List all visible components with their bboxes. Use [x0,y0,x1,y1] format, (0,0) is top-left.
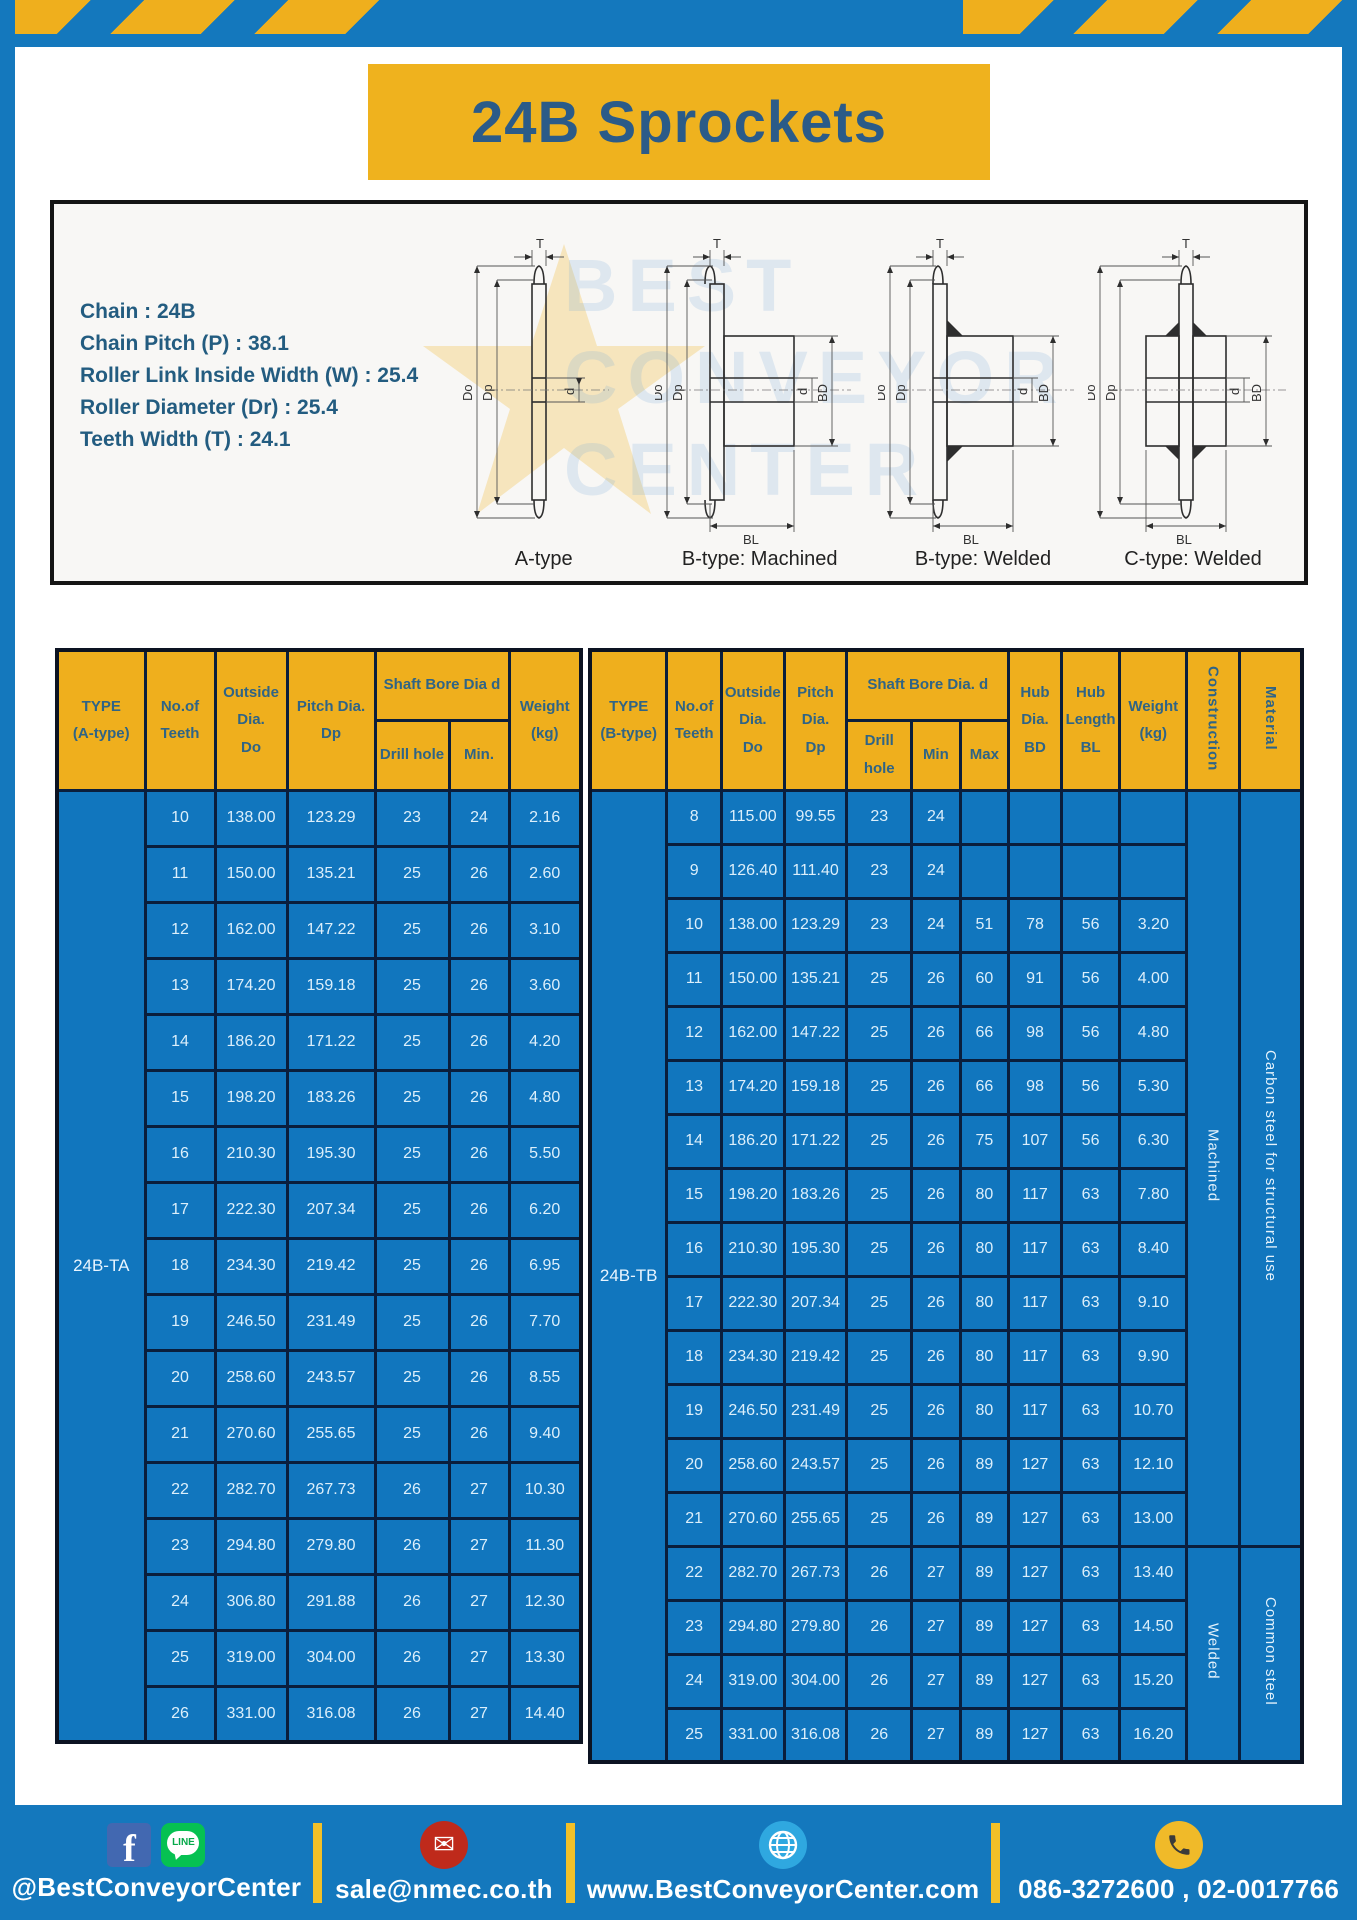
cell-min: 26 [912,1492,961,1546]
cell-min: 26 [449,1126,509,1182]
cell-outside-dia: 186.20 [215,1014,287,1070]
cell-outside-dia: 234.30 [721,1330,784,1384]
cell-hub-dia: 127 [1009,1600,1062,1654]
svg-text:BL: BL [963,532,979,547]
col-header-type: TYPE (B-type) [590,650,667,790]
cell-teeth: 23 [667,1600,722,1654]
cell-hub-length [1061,790,1120,844]
cell-weight: 8.55 [509,1350,581,1406]
footer-website: www.BestConveyorCenter.com [587,1874,980,1905]
col-header-pitch-dia: Pitch Dia. Dp [784,650,847,790]
col-header-outside-dia: Outside Dia. Do [721,650,784,790]
cell-drill-hole: 23 [847,844,912,898]
cell-outside-dia: 150.00 [215,846,287,902]
footer-email: sale@nmec.co.th [335,1874,553,1905]
cell-drill-hole: 25 [375,958,449,1014]
cell-weight: 9.90 [1120,1330,1187,1384]
cell-teeth: 24 [145,1574,215,1630]
cell-drill-hole: 23 [847,790,912,844]
cell-max: 89 [960,1438,1009,1492]
cell-drill-hole: 25 [375,1406,449,1462]
cell-hub-length: 63 [1061,1546,1120,1600]
cell-min: 26 [912,1276,961,1330]
cell-max: 80 [960,1168,1009,1222]
cell-min: 26 [912,1384,961,1438]
cell-min: 26 [912,1330,961,1384]
cell-teeth: 25 [145,1630,215,1686]
cell-min: 24 [912,790,961,844]
cell-weight: 6.20 [509,1182,581,1238]
cell-teeth: 11 [145,846,215,902]
cell-min: 26 [912,1168,961,1222]
globe-icon[interactable] [759,1821,807,1869]
cell-outside-dia: 210.30 [215,1126,287,1182]
table-row: 22282.70267.732627891276313.40WeldedComm… [590,1546,1302,1600]
cell-drill-hole: 25 [375,1350,449,1406]
cell-hub-length [1061,844,1120,898]
cell-outside-dia: 210.30 [721,1222,784,1276]
cell-teeth: 10 [145,790,215,846]
cell-drill-hole: 25 [847,1438,912,1492]
cell-max: 89 [960,1708,1009,1762]
cell-pitch-dia: 123.29 [287,790,375,846]
cell-hub-dia: 127 [1009,1492,1062,1546]
cell-max: 80 [960,1384,1009,1438]
footer-social-handle: @BestConveyorCenter [12,1872,302,1903]
cell-teeth: 22 [667,1546,722,1600]
material-cell: Common steel [1239,1546,1302,1762]
cell-teeth: 22 [145,1462,215,1518]
diagram-panel: BEST CONVEYOR CENTER Chain : 24B Chain P… [50,200,1308,585]
cell-max [960,844,1009,898]
cell-weight: 13.30 [509,1630,581,1686]
cell-outside-dia: 258.60 [215,1350,287,1406]
cell-pitch-dia: 207.34 [287,1182,375,1238]
table-a-rows: 24B-TA10138.00123.2923242.1611150.00135.… [57,790,581,1742]
cell-pitch-dia: 171.22 [287,1014,375,1070]
cell-outside-dia: 294.80 [215,1518,287,1574]
cell-drill-hole: 25 [847,1222,912,1276]
cell-teeth: 18 [145,1238,215,1294]
cell-pitch-dia: 267.73 [784,1546,847,1600]
cell-outside-dia: 162.00 [215,902,287,958]
cell-drill-hole: 23 [847,898,912,952]
cell-pitch-dia: 304.00 [287,1630,375,1686]
line-icon[interactable]: LINE [161,1823,205,1867]
b-type-welded-drawing-icon: T Do Dp [878,236,1088,548]
cell-pitch-dia: 111.40 [784,844,847,898]
table-row: 24B-TA10138.00123.2923242.16 [57,790,581,846]
cell-weight: 10.30 [509,1462,581,1518]
col-header-hub-length: Hub Length BL [1061,650,1120,790]
cell-hub-dia: 127 [1009,1438,1062,1492]
cell-outside-dia: 270.60 [721,1492,784,1546]
cell-hub-dia: 127 [1009,1546,1062,1600]
cell-pitch-dia: 231.49 [287,1294,375,1350]
cell-drill-hole: 25 [375,902,449,958]
cell-pitch-dia: 255.65 [784,1492,847,1546]
footer-divider [991,1823,1000,1903]
cell-max: 51 [960,898,1009,952]
b-type-machined-drawing-icon: T Do Dp d [655,236,865,548]
cell-hub-dia: 91 [1009,952,1062,1006]
cell-weight: 4.80 [509,1070,581,1126]
cell-teeth: 14 [667,1114,722,1168]
cell-teeth: 17 [667,1276,722,1330]
cell-pitch-dia: 171.22 [784,1114,847,1168]
cell-weight: 4.80 [1120,1006,1187,1060]
cell-pitch-dia: 135.21 [784,952,847,1006]
cell-hub-dia: 117 [1009,1276,1062,1330]
type-label-cell: 24B-TA [57,790,145,1742]
cell-teeth: 14 [145,1014,215,1070]
cell-hub-dia: 117 [1009,1330,1062,1384]
cell-hub-dia: 98 [1009,1060,1062,1114]
cell-weight: 14.40 [509,1686,581,1742]
cell-hub-length: 63 [1061,1384,1120,1438]
cell-outside-dia: 115.00 [721,790,784,844]
svg-text:Do: Do [878,384,888,401]
cell-pitch-dia: 279.80 [784,1600,847,1654]
svg-text:BD: BD [1249,384,1264,402]
cell-pitch-dia: 195.30 [784,1222,847,1276]
cell-outside-dia: 222.30 [721,1276,784,1330]
cell-hub-length: 63 [1061,1276,1120,1330]
svg-text:Do: Do [1088,384,1098,401]
cell-teeth: 12 [667,1006,722,1060]
cell-min: 24 [912,898,961,952]
cell-pitch-dia: 316.08 [784,1708,847,1762]
cell-drill-hole: 26 [847,1708,912,1762]
cell-outside-dia: 186.20 [721,1114,784,1168]
cell-weight: 7.70 [509,1294,581,1350]
cell-min: 26 [912,1438,961,1492]
svg-text:BL: BL [743,532,759,547]
cell-min: 26 [449,1238,509,1294]
cell-min: 27 [912,1654,961,1708]
email-icon[interactable]: ✉ [420,1821,468,1869]
col-header-max: Max [960,720,1009,790]
hazard-stripe-left [0,0,394,34]
col-header-shaft-bore: Shaft Bore Dia d [375,650,509,720]
cell-weight: 4.00 [1120,952,1187,1006]
cell-teeth: 15 [145,1070,215,1126]
spec-roller-link-width: Roller Link Inside Width (W) : 25.4 [80,360,418,392]
cell-weight: 4.20 [509,1014,581,1070]
cell-pitch-dia: 183.26 [784,1168,847,1222]
cell-max: 80 [960,1330,1009,1384]
cell-outside-dia: 306.80 [215,1574,287,1630]
cell-hub-length: 56 [1061,952,1120,1006]
cell-pitch-dia: 316.08 [287,1686,375,1742]
cell-hub-length: 63 [1061,1600,1120,1654]
svg-text:T: T [713,236,721,251]
col-header-drill-hole: Drill hole [375,720,449,790]
cell-weight [1120,844,1187,898]
cell-max: 89 [960,1492,1009,1546]
cell-pitch-dia: 219.42 [287,1238,375,1294]
cell-min: 26 [449,1294,509,1350]
cell-pitch-dia: 279.80 [287,1518,375,1574]
col-header-shaft-bore: Shaft Bore Dia. d [847,650,1009,720]
svg-text:Do: Do [655,384,665,401]
cell-weight: 3.60 [509,958,581,1014]
footer-phone-section: 086-3272600 , 02-0017766 [1000,1805,1357,1920]
cell-max: 80 [960,1276,1009,1330]
cell-pitch-dia: 159.18 [784,1060,847,1114]
cell-teeth: 13 [667,1060,722,1114]
cell-weight: 9.10 [1120,1276,1187,1330]
cell-min: 26 [449,1406,509,1462]
cell-pitch-dia: 123.29 [784,898,847,952]
cell-max: 89 [960,1654,1009,1708]
cell-outside-dia: 270.60 [215,1406,287,1462]
table-row: 24B-TB8115.0099.552324MachinedCarbon ste… [590,790,1302,844]
table-b-type: TYPE (B-type) No.of Teeth Outside Dia. D… [588,648,1304,1764]
cell-hub-dia [1009,844,1062,898]
col-header-teeth: No.of Teeth [667,650,722,790]
frame-right [1342,0,1357,1920]
footer-email-section: ✉ sale@nmec.co.th [322,1805,566,1920]
cell-pitch-dia: 135.21 [287,846,375,902]
cell-teeth: 23 [145,1518,215,1574]
cell-drill-hole: 26 [847,1546,912,1600]
col-header-teeth: No.of Teeth [145,650,215,790]
cell-teeth: 10 [667,898,722,952]
cell-teeth: 20 [145,1350,215,1406]
cell-pitch-dia: 183.26 [287,1070,375,1126]
svg-text:d: d [1015,388,1030,395]
cell-max: 66 [960,1060,1009,1114]
cell-weight: 5.30 [1120,1060,1187,1114]
cell-min: 27 [449,1630,509,1686]
cell-weight: 11.30 [509,1518,581,1574]
footer-social-section: f LINE @BestConveyorCenter [0,1805,313,1920]
col-header-weight: Weight (kg) [509,650,581,790]
cell-hub-dia [1009,790,1062,844]
cell-pitch-dia: 243.57 [287,1350,375,1406]
cell-pitch-dia: 99.55 [784,790,847,844]
cell-max: 89 [960,1600,1009,1654]
cell-drill-hole: 26 [847,1654,912,1708]
col-header-weight: Weight (kg) [1120,650,1187,790]
diagram-b-type-welded: T Do Dp [878,212,1088,577]
cell-pitch-dia: 195.30 [287,1126,375,1182]
diagram-label-c-welded: C-type: Welded [1124,548,1261,577]
phone-icon[interactable] [1155,1821,1203,1869]
spec-roller-diameter: Roller Diameter (Dr) : 25.4 [80,392,418,424]
cell-hub-length: 63 [1061,1438,1120,1492]
svg-text:Dp: Dp [1103,384,1118,401]
cell-outside-dia: 162.00 [721,1006,784,1060]
cell-pitch-dia: 304.00 [784,1654,847,1708]
cell-drill-hole: 26 [847,1600,912,1654]
footer-divider [566,1823,575,1903]
col-header-min: Min [912,720,961,790]
cell-hub-length: 56 [1061,1114,1120,1168]
cell-weight: 7.80 [1120,1168,1187,1222]
cell-teeth: 11 [667,952,722,1006]
cell-max [960,790,1009,844]
hazard-stripe-right [963,0,1357,34]
construction-cell: Machined [1187,790,1240,1546]
cell-drill-hole: 26 [375,1630,449,1686]
cell-drill-hole: 25 [847,1384,912,1438]
col-header-min: Min. [449,720,509,790]
cell-outside-dia: 126.40 [721,844,784,898]
cell-pitch-dia: 147.22 [784,1006,847,1060]
cell-hub-length: 63 [1061,1168,1120,1222]
svg-text:d: d [562,388,577,395]
cell-outside-dia: 246.50 [721,1384,784,1438]
col-header-type: TYPE (A-type) [57,650,145,790]
sprocket-diagrams: T Do Dp d [446,212,1298,577]
diagram-label-b-machined: B-type: Machined [682,548,838,577]
cell-min: 26 [912,1222,961,1276]
cell-max: 66 [960,1006,1009,1060]
cell-hub-length: 56 [1061,1006,1120,1060]
cell-teeth: 16 [667,1222,722,1276]
svg-text:Do: Do [460,384,475,401]
svg-text:BD: BD [815,384,830,402]
cell-outside-dia: 198.20 [721,1168,784,1222]
cell-min: 26 [449,958,509,1014]
cell-hub-dia: 78 [1009,898,1062,952]
frame-top-bar [0,34,1357,47]
cell-min: 24 [912,844,961,898]
cell-drill-hole: 25 [847,1492,912,1546]
cell-hub-dia: 98 [1009,1006,1062,1060]
cell-teeth: 26 [145,1686,215,1742]
col-header-drill-hole: Drill hole [847,720,912,790]
diagram-label-b-welded: B-type: Welded [915,548,1051,577]
cell-hub-dia: 117 [1009,1384,1062,1438]
footer-contact-bar: f LINE @BestConveyorCenter ✉ sale@nmec.c… [0,1805,1357,1920]
cell-outside-dia: 319.00 [721,1654,784,1708]
col-header-hub-dia: Hub Dia. BD [1009,650,1062,790]
cell-teeth: 24 [667,1654,722,1708]
cell-drill-hole: 25 [375,1238,449,1294]
footer-phone-numbers: 086-3272600 , 02-0017766 [1018,1874,1339,1905]
cell-outside-dia: 198.20 [215,1070,287,1126]
diagram-c-type-welded: T Do Dp [1088,212,1298,577]
cell-weight: 6.95 [509,1238,581,1294]
cell-outside-dia: 294.80 [721,1600,784,1654]
cell-hub-length: 63 [1061,1492,1120,1546]
cell-outside-dia: 282.70 [721,1546,784,1600]
material-cell: Carbon steel for structural use [1239,790,1302,1546]
cell-outside-dia: 282.70 [215,1462,287,1518]
cell-weight: 15.20 [1120,1654,1187,1708]
cell-drill-hole: 25 [847,1276,912,1330]
cell-hub-dia: 107 [1009,1114,1062,1168]
cell-min: 24 [449,790,509,846]
cell-drill-hole: 25 [375,1294,449,1350]
svg-text:Dp: Dp [893,384,908,401]
cell-teeth: 9 [667,844,722,898]
footer-social-icons: f LINE [107,1823,205,1867]
diagram-a-type: T Do Dp d [446,212,641,577]
cell-max: 80 [960,1222,1009,1276]
cell-drill-hole: 26 [375,1462,449,1518]
cell-min: 27 [449,1574,509,1630]
cell-hub-length: 63 [1061,1222,1120,1276]
cell-teeth: 12 [145,902,215,958]
title-banner: 24B Sprockets [368,64,990,180]
cell-drill-hole: 25 [847,1168,912,1222]
svg-text:T: T [1182,236,1190,251]
cell-hub-length: 63 [1061,1330,1120,1384]
svg-text:Dp: Dp [670,384,685,401]
cell-drill-hole: 25 [375,1070,449,1126]
cell-pitch-dia: 267.73 [287,1462,375,1518]
facebook-icon[interactable]: f [107,1823,151,1867]
cell-drill-hole: 25 [847,1114,912,1168]
cell-teeth: 17 [145,1182,215,1238]
cell-hub-dia: 127 [1009,1708,1062,1762]
cell-outside-dia: 234.30 [215,1238,287,1294]
cell-outside-dia: 319.00 [215,1630,287,1686]
table-a-type: TYPE (A-type) No.of Teeth Outside Dia. D… [55,648,583,1744]
frame-left [0,0,15,1920]
footer-website-section: www.BestConveyorCenter.com [575,1805,991,1920]
cell-weight: 16.20 [1120,1708,1187,1762]
cell-hub-dia: 127 [1009,1654,1062,1708]
cell-weight: 12.10 [1120,1438,1187,1492]
cell-pitch-dia: 207.34 [784,1276,847,1330]
cell-outside-dia: 150.00 [721,952,784,1006]
diagram-label-a-type: A-type [515,548,573,577]
cell-weight: 8.40 [1120,1222,1187,1276]
construction-cell: Welded [1187,1546,1240,1762]
top-hazard-stripes [0,0,1357,34]
cell-teeth: 21 [145,1406,215,1462]
svg-text:BL: BL [1176,532,1192,547]
cell-hub-length: 56 [1061,898,1120,952]
cell-min: 27 [449,1462,509,1518]
cell-min: 26 [449,1014,509,1070]
svg-text:T: T [536,236,544,251]
svg-text:d: d [795,388,810,395]
cell-pitch-dia: 219.42 [784,1330,847,1384]
cell-weight: 2.60 [509,846,581,902]
cell-teeth: 13 [145,958,215,1014]
cell-pitch-dia: 147.22 [287,902,375,958]
cell-outside-dia: 258.60 [721,1438,784,1492]
cell-drill-hole: 26 [375,1686,449,1742]
cell-hub-dia: 117 [1009,1168,1062,1222]
cell-teeth: 18 [667,1330,722,1384]
cell-teeth: 16 [145,1126,215,1182]
col-header-pitch-dia: Pitch Dia. Dp [287,650,375,790]
cell-min: 26 [449,1350,509,1406]
cell-outside-dia: 174.20 [721,1060,784,1114]
cell-pitch-dia: 231.49 [784,1384,847,1438]
cell-min: 26 [449,902,509,958]
cell-drill-hole: 25 [375,1014,449,1070]
cell-outside-dia: 331.00 [215,1686,287,1742]
cell-weight: 12.30 [509,1574,581,1630]
cell-weight: 9.40 [509,1406,581,1462]
cell-min: 27 [449,1686,509,1742]
cell-drill-hole: 25 [375,1126,449,1182]
cell-min: 26 [449,846,509,902]
cell-pitch-dia: 291.88 [287,1574,375,1630]
cell-outside-dia: 174.20 [215,958,287,1014]
cell-drill-hole: 26 [375,1574,449,1630]
footer-divider [313,1823,322,1903]
cell-drill-hole: 25 [375,1182,449,1238]
